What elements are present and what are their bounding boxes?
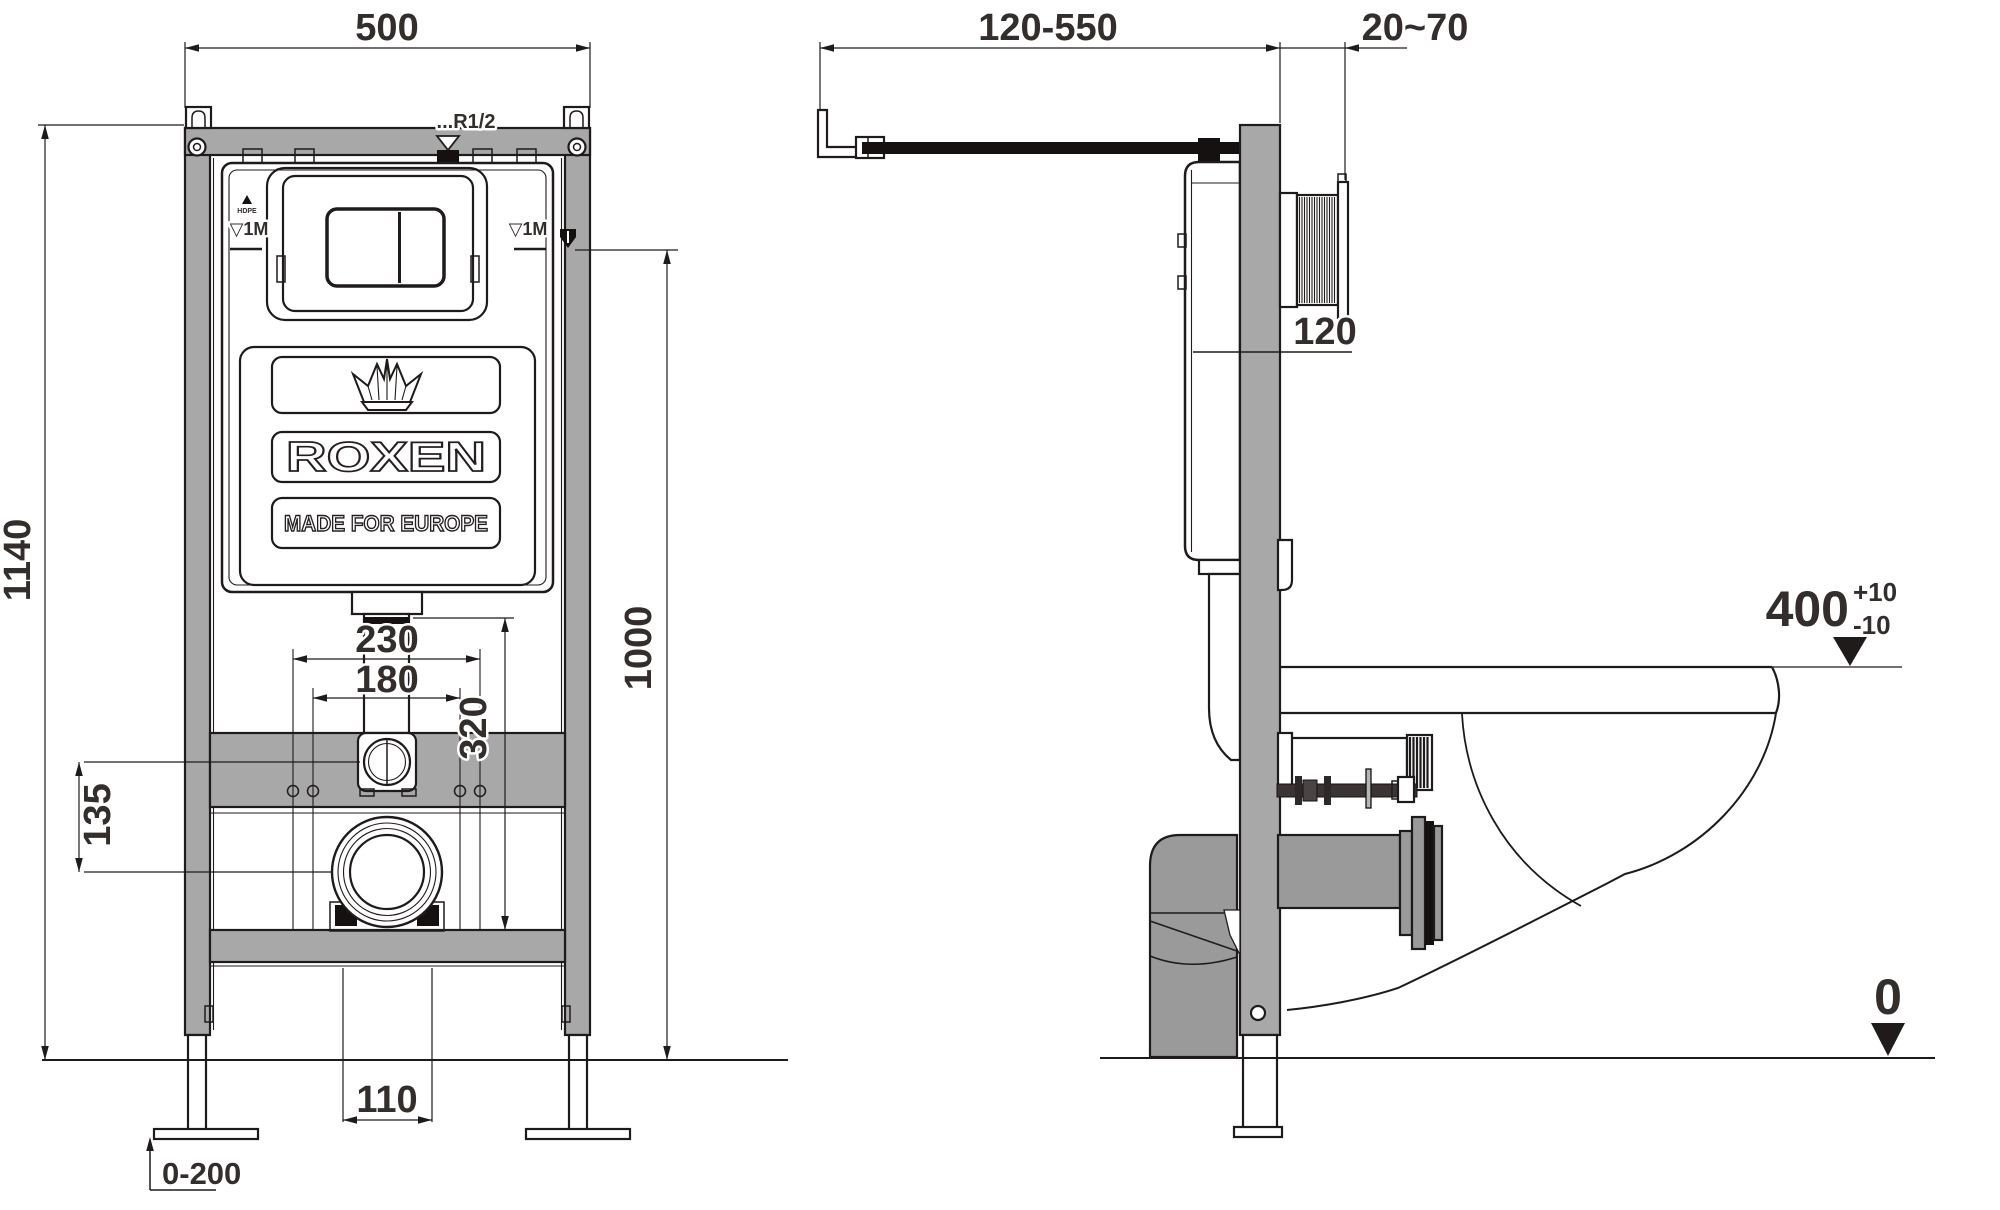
technical-drawing: ...R1/2 HDPE ▽1M ▽1M (0, 0, 2000, 1210)
material-label: HDPE (237, 208, 257, 215)
left-leg-tube (188, 1035, 206, 1133)
right-corner-bracket (564, 107, 589, 128)
dim-tolerance-plus: +10 (1853, 577, 1897, 607)
side-view: 120-550 20~70 120 400 +10 -10 0 (818, 7, 1935, 1137)
flush-bend (1209, 574, 1240, 760)
drain-outer-ring (332, 817, 442, 927)
cistern-side (1178, 162, 1240, 760)
dim-leg-adjustment: 0-200 (162, 1156, 241, 1191)
foot-plate-side (1234, 1127, 1282, 1137)
post-side (1240, 125, 1280, 1035)
inlet-thread-label: ...R1/2 (437, 111, 496, 133)
right-bolt-hole (569, 139, 586, 156)
supply-valve-block (1198, 138, 1220, 164)
post-bolt-hole-side (1251, 1006, 1265, 1020)
dim-waste-width: 110 (356, 1079, 417, 1121)
left-bolt-hole (189, 139, 206, 156)
flush-pipe-flange (352, 592, 422, 614)
outlet-gasket (1425, 821, 1434, 945)
inlet-square-icon (437, 150, 459, 163)
right-leg-tube (569, 1035, 587, 1133)
dim-bowl-height: 400 (1766, 581, 1849, 637)
brand-tagline: MADE FOR EUROPE (284, 511, 488, 536)
lower-crossbar (210, 930, 565, 962)
flush-bend-outlet (1278, 540, 1292, 590)
seat-level-triangle-icon (1833, 637, 1867, 666)
front-view: ...R1/2 HDPE ▽1M ▽1M (0, 7, 788, 1191)
dim-wall-distance: 120-550 (978, 7, 1117, 49)
cistern-bottom-step (1199, 560, 1240, 574)
corrugation-lines (1300, 197, 1335, 303)
flush-button-conduit (1280, 174, 1348, 318)
waste-outlet-pipe (1278, 835, 1400, 908)
dim-floor-level: 0 (1874, 969, 1902, 1025)
level-label-left: ▽1M (230, 219, 269, 239)
cistern: HDPE ▽1M ▽1M ROXEN MADE FOR EUROPE (222, 163, 553, 592)
bowl-rim-front (1772, 667, 1779, 713)
outlet-flange-1 (1400, 831, 1412, 935)
leg-tube-side (1243, 1035, 1277, 1128)
dim-overall-height: 1140 (0, 519, 39, 601)
outlet-flange-3 (1434, 826, 1442, 940)
dim-fixing-outer: 230 (355, 619, 418, 661)
waste-drain (330, 817, 444, 931)
seat-height-mark: 400 +10 -10 (1766, 577, 1898, 666)
floor-level-mark: 0 (1871, 969, 1905, 1056)
center-fitting (358, 733, 416, 796)
left-post (185, 128, 210, 1035)
flush-buttons[interactable] (327, 209, 444, 286)
supply-pipe (862, 142, 1240, 154)
brand-name: ROXEN (286, 433, 486, 480)
drawing-canvas: ...R1/2 HDPE ▽1M ▽1M (0, 0, 2000, 1210)
level-label-right: ▽1M (509, 219, 548, 239)
water-supply (818, 110, 1240, 164)
waste-piping (1150, 817, 1442, 1057)
right-foot-plate (526, 1129, 630, 1139)
dim-overall-width: 500 (355, 7, 418, 49)
cistern-side-body (1185, 162, 1240, 560)
right-post (565, 128, 590, 1035)
dim-finish-gap: 20~70 (1362, 7, 1469, 49)
dim-offset-outlet: 135 (77, 783, 119, 846)
top-crossbar (185, 128, 590, 155)
conduit-front-plate (1338, 182, 1348, 318)
bowl-inner-curve (1462, 714, 1581, 906)
left-foot-plate (154, 1129, 258, 1139)
floor-level-triangle-icon (1871, 1023, 1905, 1056)
dim-inlet-height: 1000 (618, 606, 660, 691)
dim-tolerance-minus: -10 (1853, 610, 1891, 640)
conduit-connector (1280, 193, 1297, 307)
left-corner-bracket (186, 107, 211, 128)
outlet-flange-2 (1412, 817, 1425, 949)
dim-outlet-height: 320 (453, 696, 495, 759)
dim-fixing-inner: 180 (355, 659, 418, 701)
flush-conn-cap (1278, 733, 1292, 791)
dim-frame-depth: 120 (1293, 311, 1356, 353)
